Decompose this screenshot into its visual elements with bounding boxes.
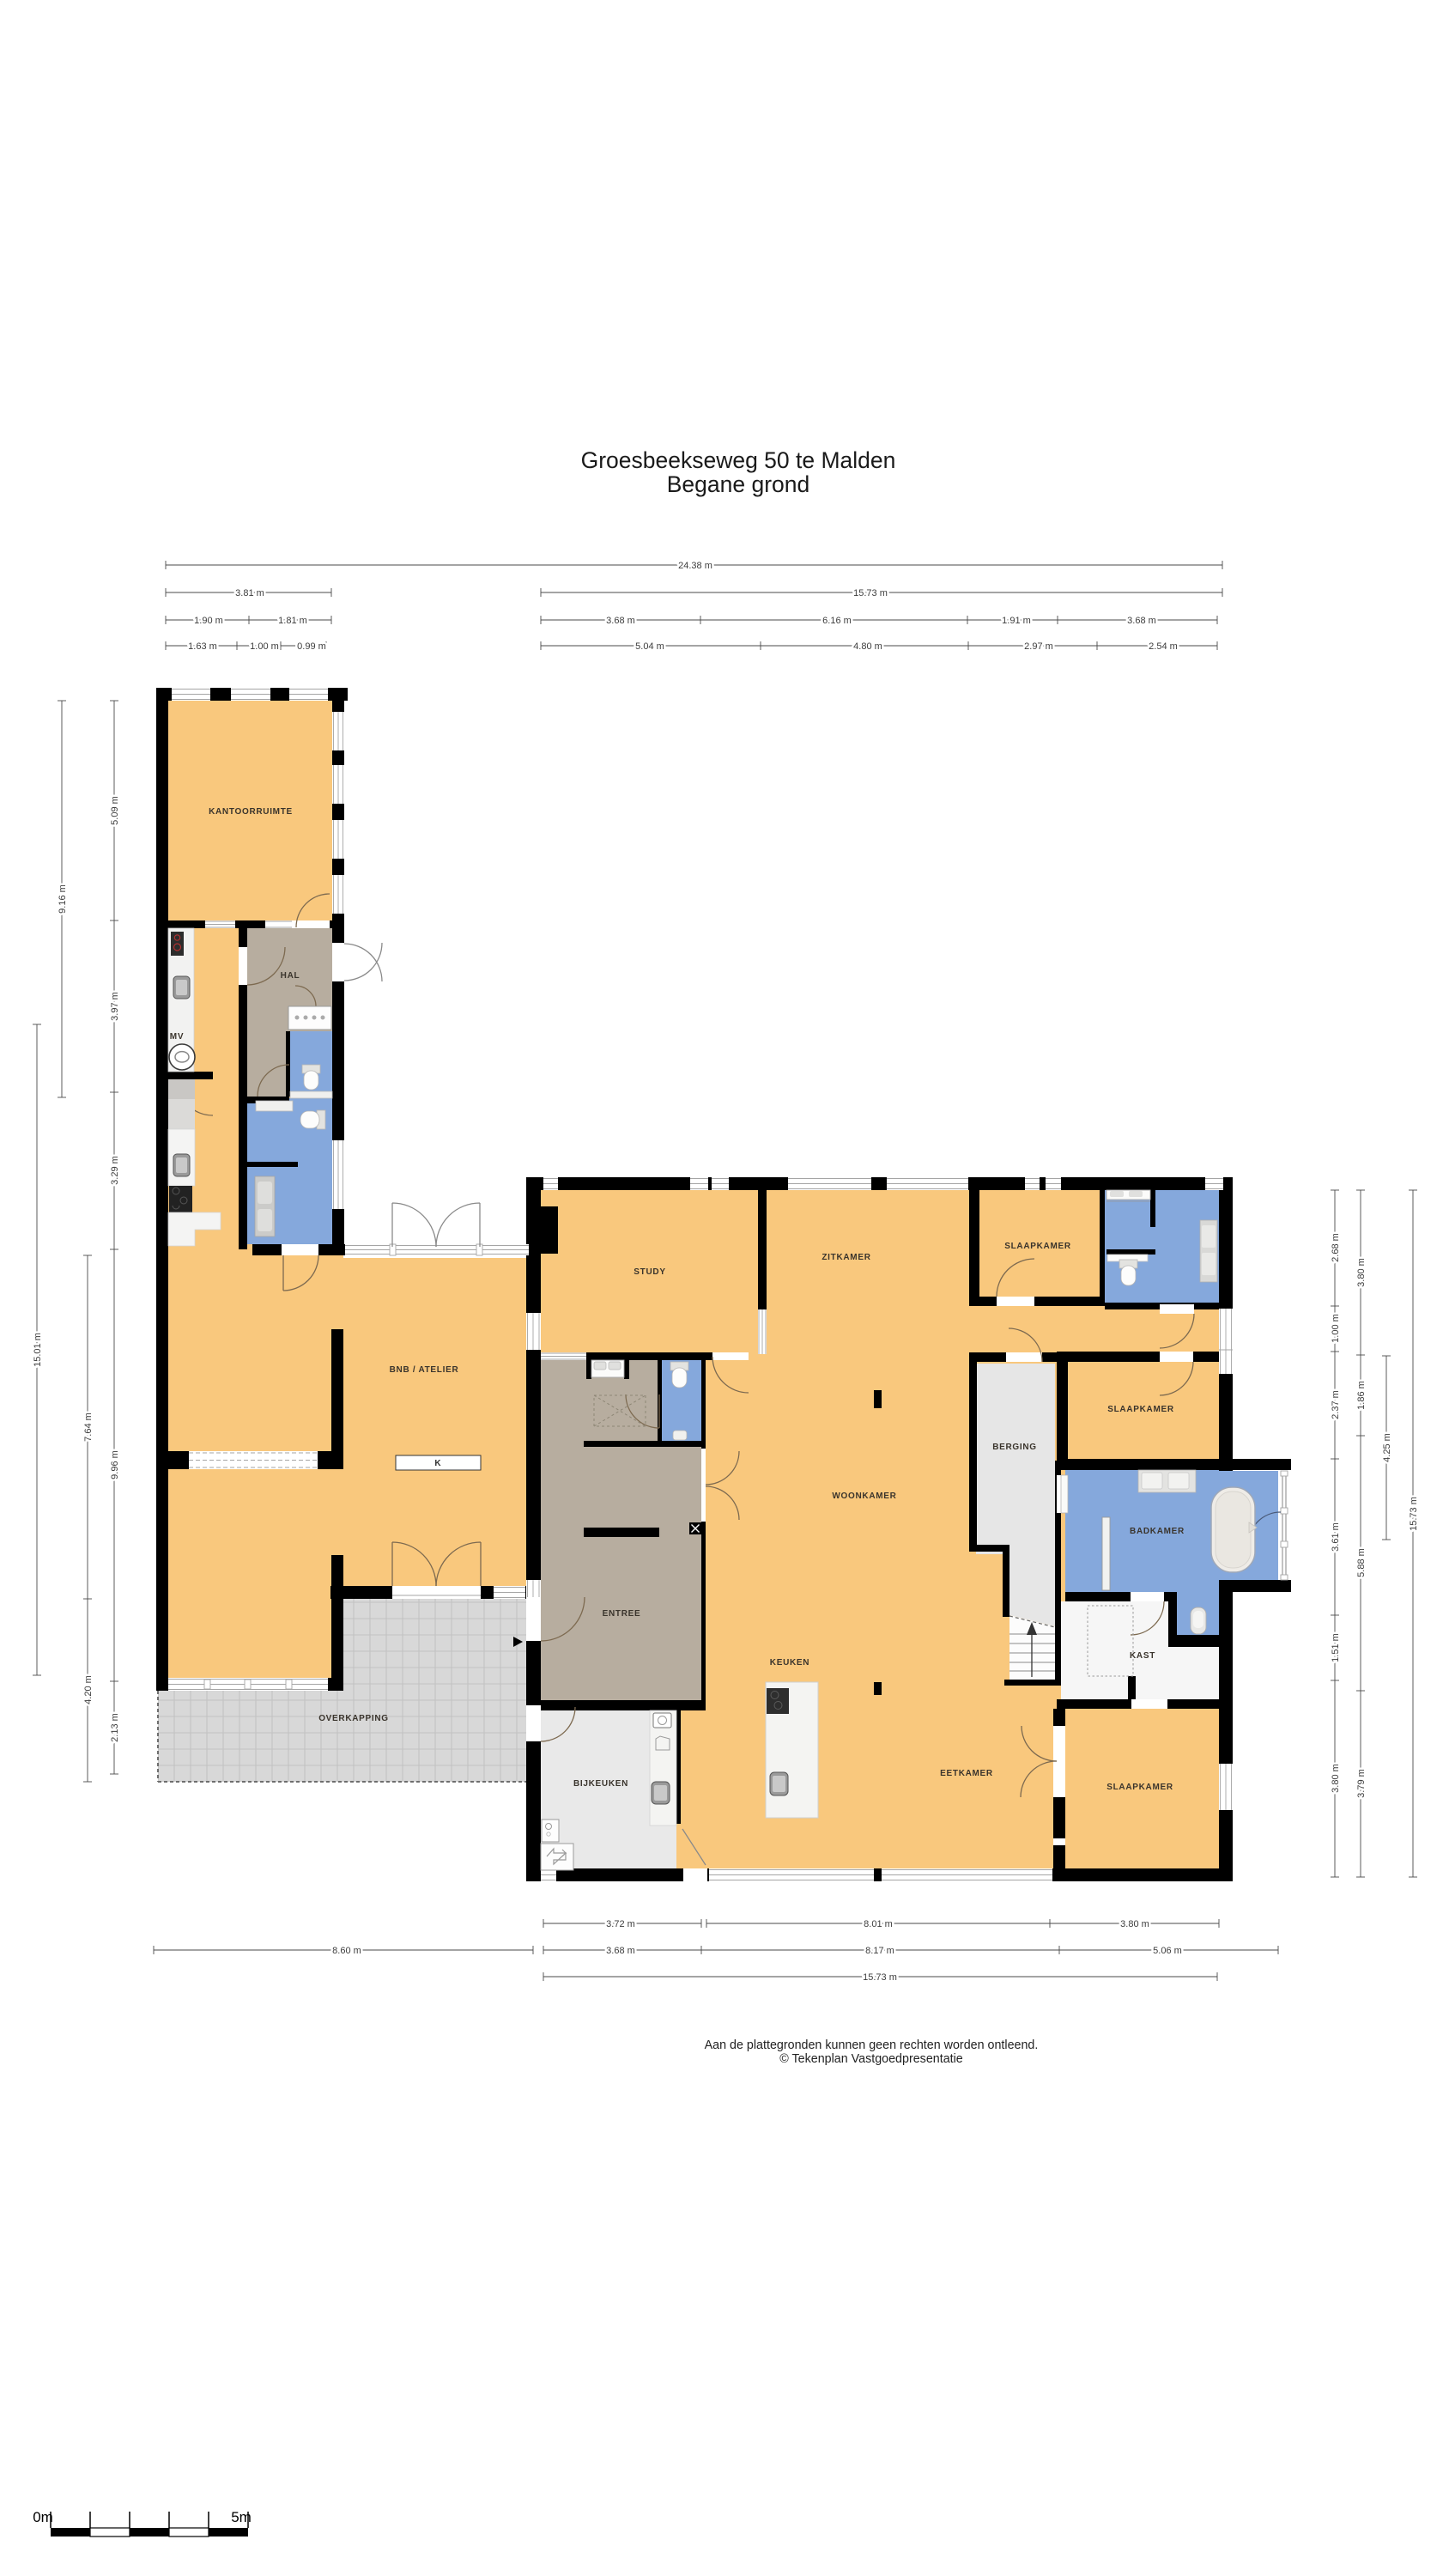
svg-text:SLAAPKAMER: SLAAPKAMER <box>1107 1405 1174 1414</box>
svg-text:4.80 m: 4.80 m <box>853 641 882 652</box>
svg-text:15.73 m: 15.73 m <box>853 588 888 598</box>
svg-text:Groesbeekseweg 50 te Malden: Groesbeekseweg 50 te Malden <box>581 447 896 473</box>
svg-text:BERGING: BERGING <box>992 1443 1037 1452</box>
svg-text:KAST: KAST <box>1130 1651 1155 1661</box>
svg-text:1.51 m: 1.51 m <box>1331 1633 1341 1662</box>
svg-text:15.73 m: 15.73 m <box>863 1972 897 1983</box>
svg-text:5.04 m: 5.04 m <box>635 641 664 652</box>
svg-text:BIJKEUKEN: BIJKEUKEN <box>573 1779 628 1789</box>
svg-text:MV: MV <box>170 1032 184 1042</box>
svg-text:3.97 m: 3.97 m <box>110 992 120 1021</box>
svg-text:2.13 m: 2.13 m <box>110 1713 120 1742</box>
svg-text:K: K <box>434 1459 441 1468</box>
svg-text:15.73 m: 15.73 m <box>1409 1497 1419 1531</box>
svg-text:0m: 0m <box>33 2509 53 2525</box>
svg-text:6.16 m: 6.16 m <box>822 616 852 626</box>
svg-text:2.37 m: 2.37 m <box>1331 1390 1341 1419</box>
svg-text:1.90 m: 1.90 m <box>194 616 223 626</box>
svg-text:3.80 m: 3.80 m <box>1356 1258 1367 1287</box>
svg-text:ZITKAMER: ZITKAMER <box>822 1253 870 1262</box>
svg-text:1.81 m: 1.81 m <box>278 616 307 626</box>
svg-text:WOONKAMER: WOONKAMER <box>832 1492 896 1501</box>
svg-text:Begane grond: Begane grond <box>667 471 810 497</box>
svg-text:BNB / ATELIER: BNB / ATELIER <box>390 1365 459 1375</box>
svg-text:0.99 m: 0.99 m <box>297 641 326 652</box>
svg-text:1.00 m: 1.00 m <box>1331 1314 1341 1343</box>
svg-text:3.61 m: 3.61 m <box>1331 1522 1341 1552</box>
svg-text:SLAAPKAMER: SLAAPKAMER <box>1106 1783 1173 1792</box>
svg-text:2.97 m: 2.97 m <box>1024 641 1053 652</box>
svg-text:3.72 m: 3.72 m <box>606 1919 635 1929</box>
svg-text:ENTREE: ENTREE <box>603 1609 641 1619</box>
svg-text:2.68 m: 2.68 m <box>1331 1233 1341 1262</box>
svg-text:3.79 m: 3.79 m <box>1356 1769 1367 1798</box>
svg-text:STUDY: STUDY <box>634 1267 665 1277</box>
svg-text:3.29 m: 3.29 m <box>110 1156 120 1185</box>
svg-text:1.00 m: 1.00 m <box>250 641 279 652</box>
svg-text:15.01 m: 15.01 m <box>33 1333 43 1367</box>
svg-text:2.54 m: 2.54 m <box>1149 641 1178 652</box>
svg-text:1.91 m: 1.91 m <box>1002 616 1031 626</box>
svg-text:9.16 m: 9.16 m <box>58 884 68 914</box>
svg-text:8.17 m: 8.17 m <box>865 1946 894 1956</box>
svg-text:9.96 m: 9.96 m <box>110 1450 120 1479</box>
svg-text:OVERKAPPING: OVERKAPPING <box>318 1714 389 1723</box>
svg-text:8.60 m: 8.60 m <box>332 1946 361 1956</box>
svg-text:3.80 m: 3.80 m <box>1331 1764 1341 1793</box>
svg-text:© Tekenplan Vastgoedpresentati: © Tekenplan Vastgoedpresentatie <box>779 2052 963 2066</box>
svg-text:HAL: HAL <box>281 971 300 981</box>
svg-text:24.38 m: 24.38 m <box>678 561 712 571</box>
svg-text:EETKAMER: EETKAMER <box>940 1769 993 1778</box>
svg-text:SLAAPKAMER: SLAAPKAMER <box>1004 1242 1071 1251</box>
svg-text:KANTOORRUIMTE: KANTOORRUIMTE <box>209 807 293 817</box>
svg-text:5.06 m: 5.06 m <box>1153 1946 1182 1956</box>
svg-text:Aan de plattegronden kunnen ge: Aan de plattegronden kunnen geen rechten… <box>705 2038 1039 2052</box>
svg-text:5m: 5m <box>231 2509 252 2525</box>
svg-text:KEUKEN: KEUKEN <box>770 1658 809 1668</box>
svg-text:7.64 m: 7.64 m <box>83 1413 94 1442</box>
svg-text:3.81 m: 3.81 m <box>235 588 264 598</box>
svg-text:1.86 m: 1.86 m <box>1356 1381 1367 1410</box>
svg-text:3.80 m: 3.80 m <box>1120 1919 1149 1929</box>
svg-text:1.63 m: 1.63 m <box>188 641 217 652</box>
svg-text:3.68 m: 3.68 m <box>606 1946 635 1956</box>
svg-text:3.68 m: 3.68 m <box>1127 616 1156 626</box>
svg-text:8.01 m: 8.01 m <box>864 1919 893 1929</box>
svg-text:4.20 m: 4.20 m <box>83 1675 94 1704</box>
svg-text:4.25 m: 4.25 m <box>1382 1433 1392 1462</box>
svg-text:BADKAMER: BADKAMER <box>1130 1527 1185 1536</box>
svg-text:3.68 m: 3.68 m <box>606 616 635 626</box>
svg-text:5.88 m: 5.88 m <box>1356 1548 1367 1577</box>
svg-text:5.09 m: 5.09 m <box>110 796 120 825</box>
